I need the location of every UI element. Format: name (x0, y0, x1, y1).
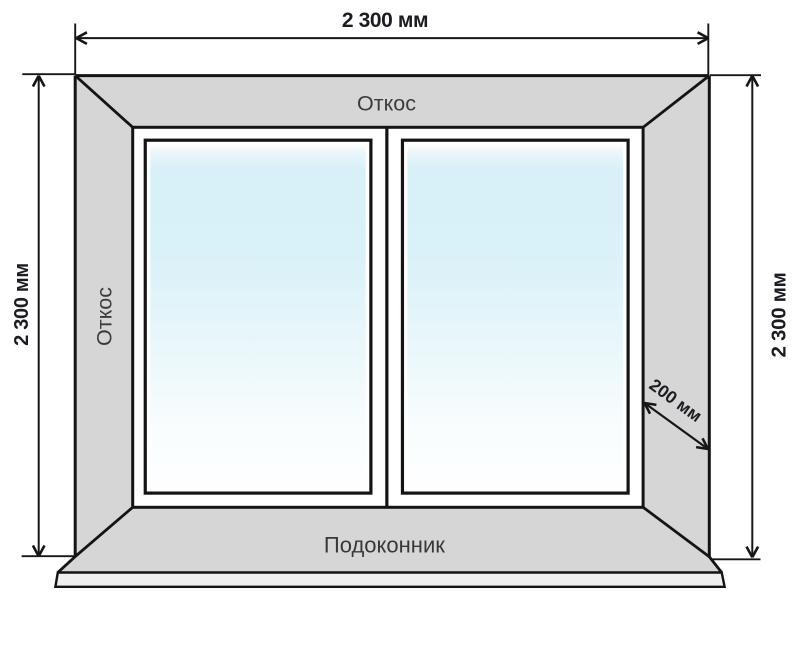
svg-text:2 300 мм: 2 300 мм (11, 263, 33, 346)
svg-text:Откос: Откос (357, 92, 416, 116)
svg-text:2 300 мм: 2 300 мм (768, 273, 791, 358)
svg-text:Откос: Откос (92, 287, 116, 346)
svg-text:2 300 мм: 2 300 мм (342, 9, 428, 32)
svg-text:Подоконник: Подоконник (324, 533, 445, 558)
